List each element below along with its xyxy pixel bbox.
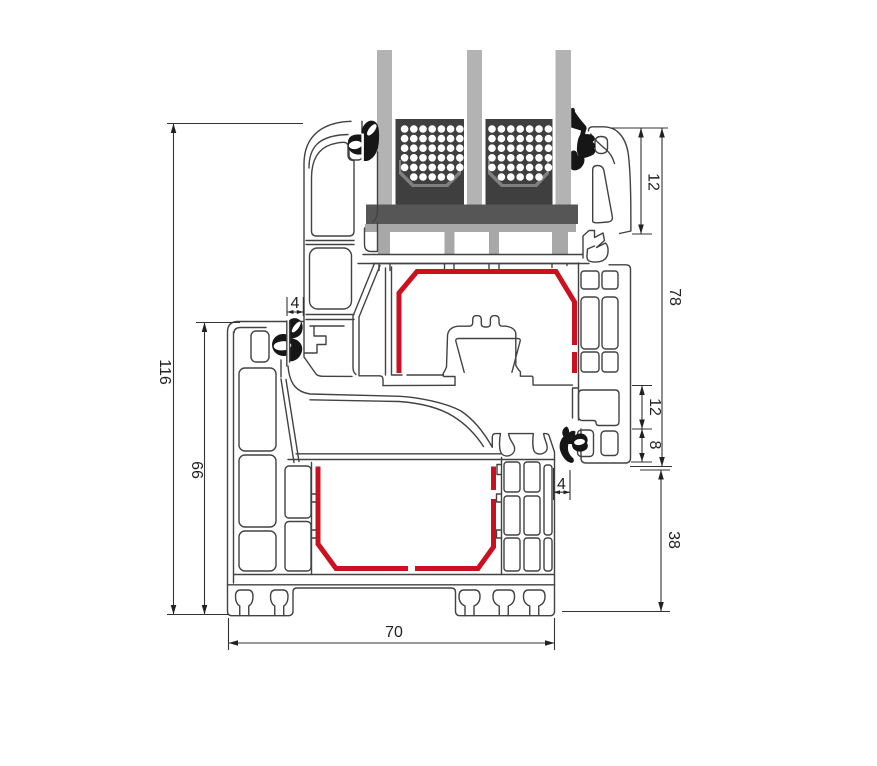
svg-text:78: 78	[666, 288, 683, 306]
svg-text:4: 4	[291, 295, 300, 312]
svg-text:12: 12	[646, 398, 663, 416]
svg-text:12: 12	[645, 173, 662, 191]
svg-text:116: 116	[156, 359, 173, 385]
svg-text:70: 70	[385, 624, 403, 641]
svg-text:38: 38	[665, 531, 682, 549]
svg-text:4: 4	[557, 476, 566, 493]
svg-text:66: 66	[188, 461, 205, 479]
svg-text:8: 8	[646, 441, 663, 450]
